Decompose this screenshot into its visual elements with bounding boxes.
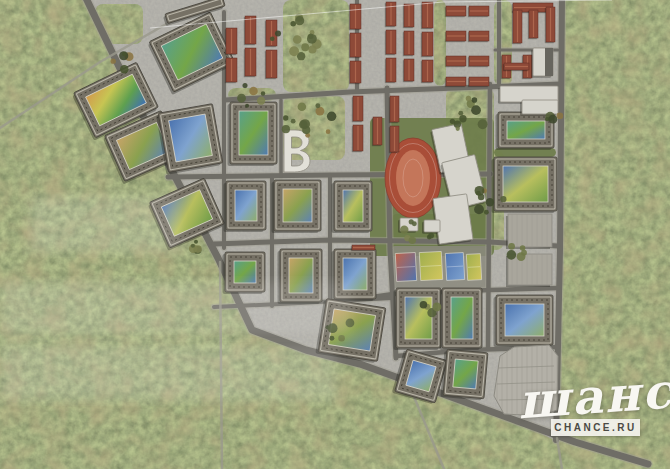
masterplan-render: шанс CHANCE.RU — [0, 0, 670, 469]
masterplan-svg — [0, 0, 670, 469]
